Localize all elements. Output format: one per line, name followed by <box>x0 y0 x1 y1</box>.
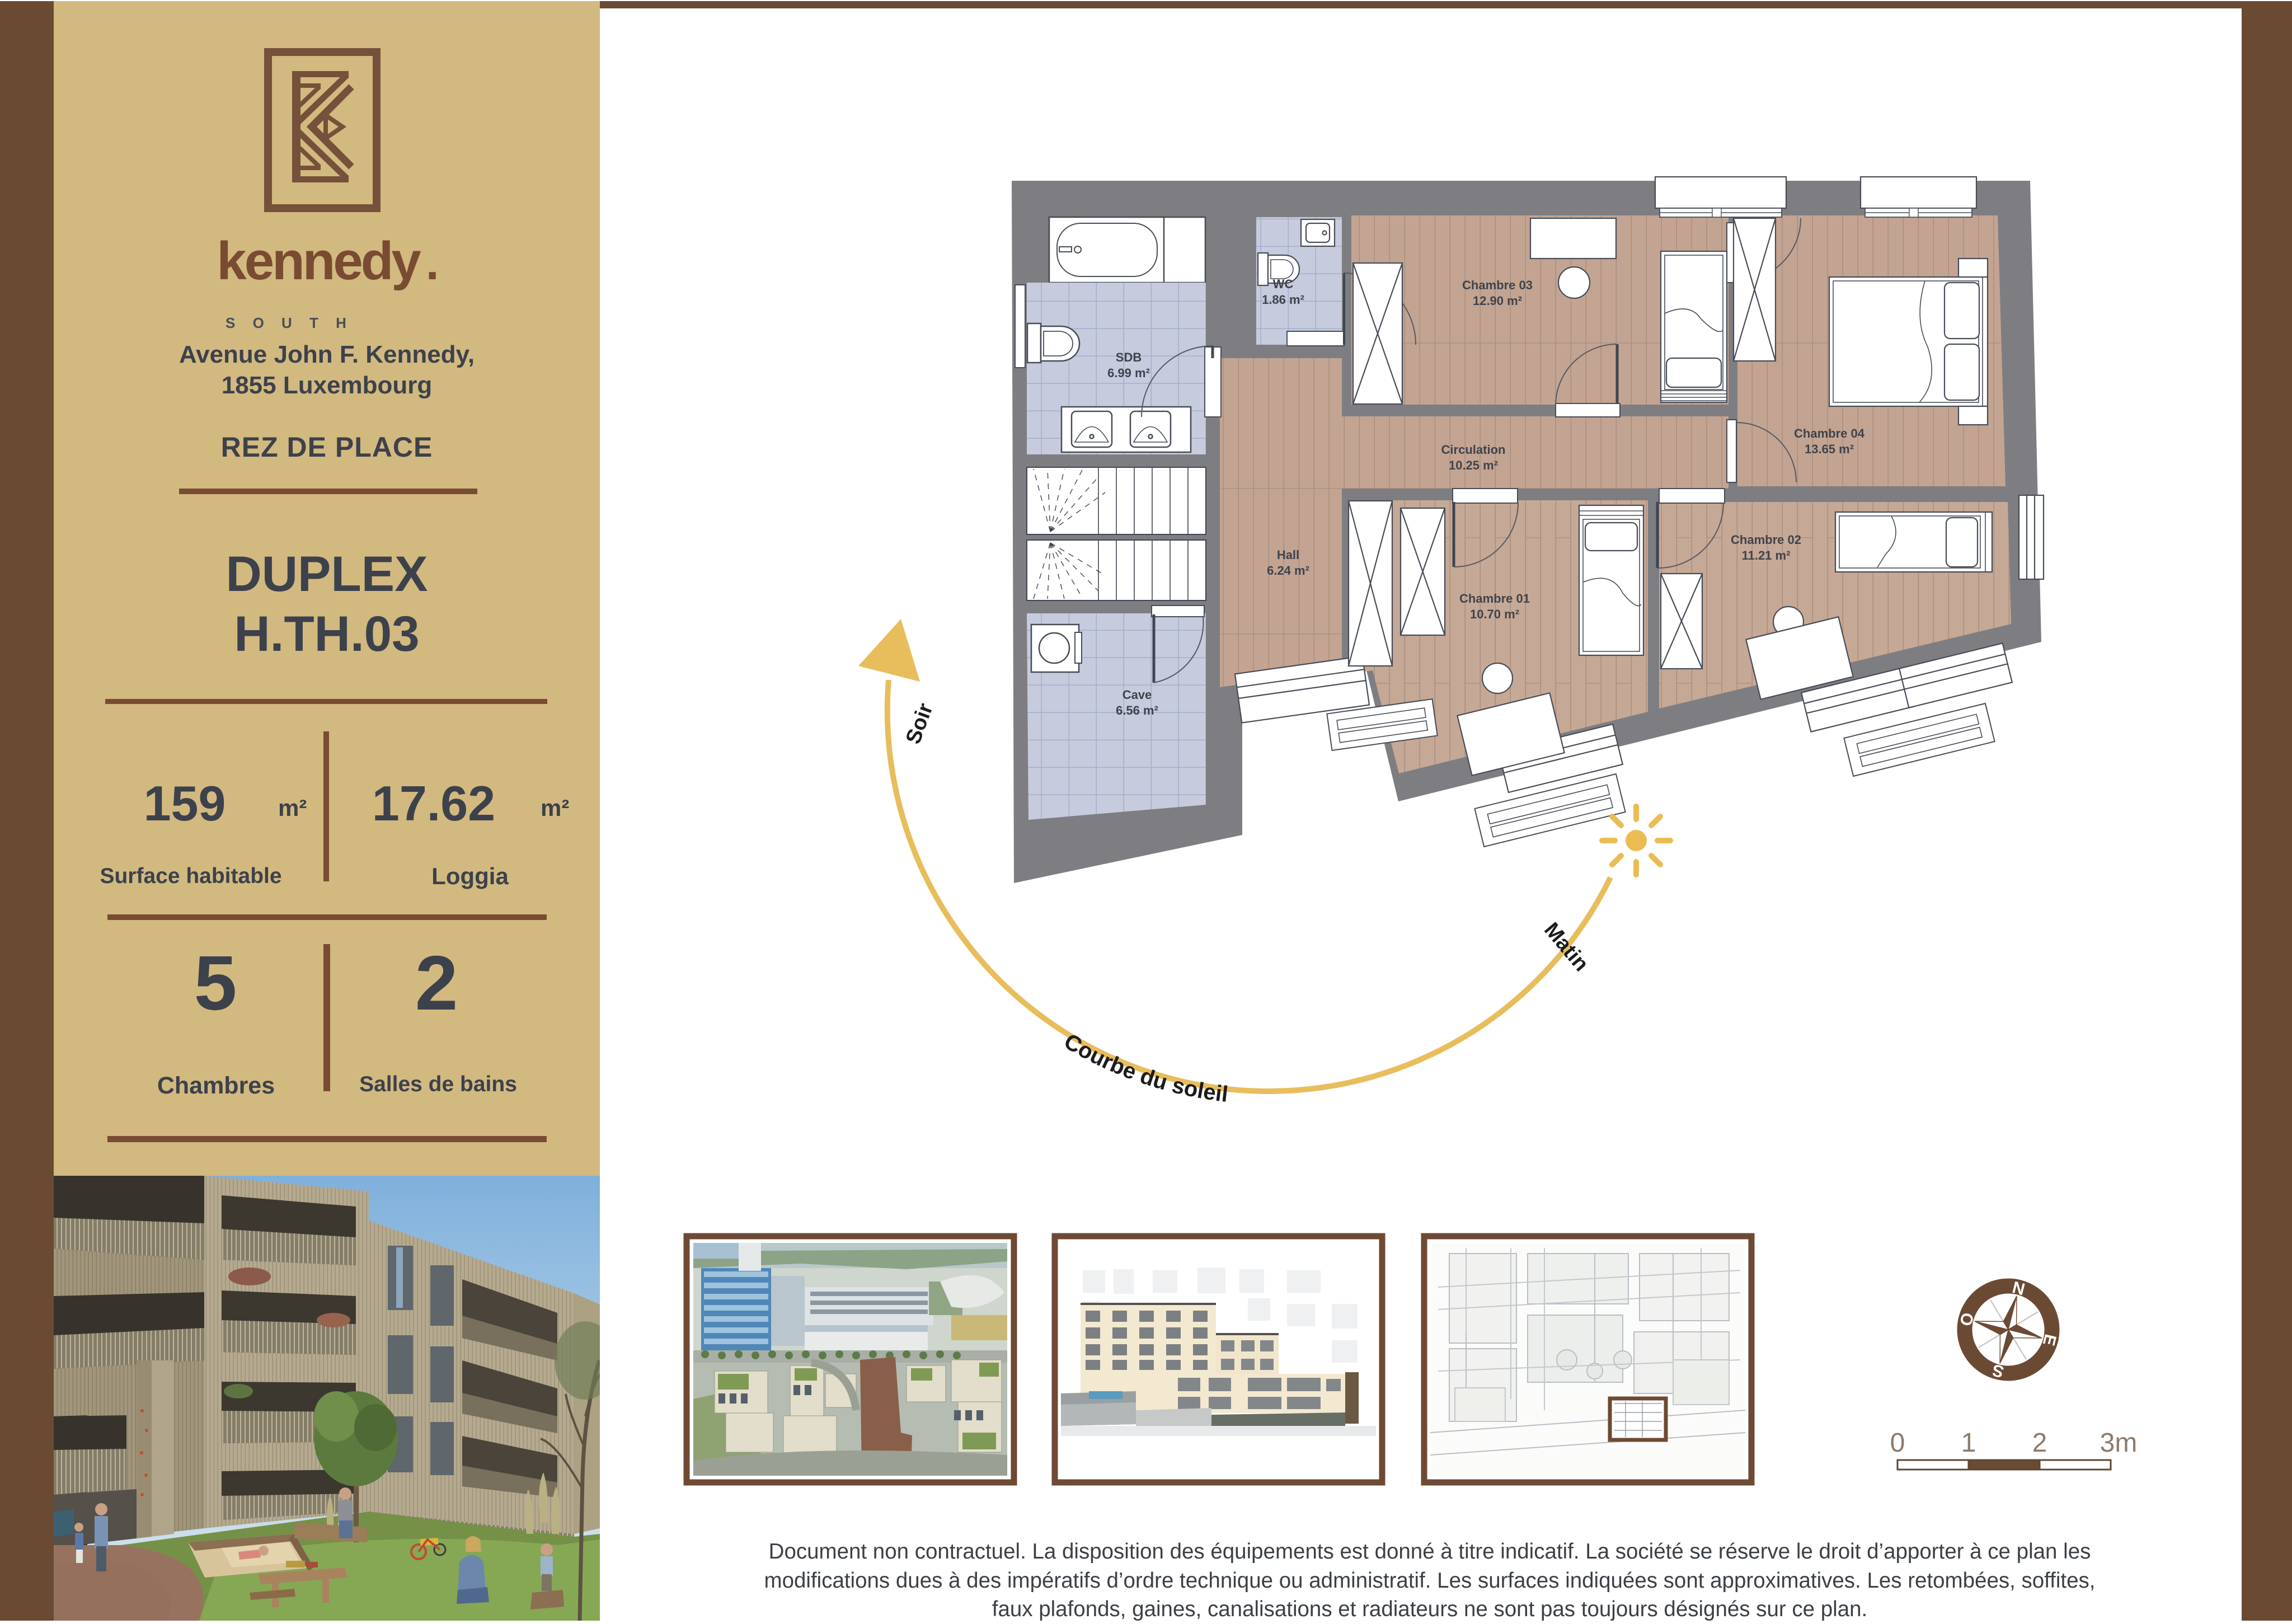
svg-text:10.25 m²: 10.25 m² <box>1449 458 1498 472</box>
svg-text:Soir: Soir <box>901 700 938 747</box>
svg-text:Chambre 02: Chambre 02 <box>1731 533 1801 547</box>
svg-text:WC: WC <box>1273 277 1294 291</box>
svg-text:11.21 m²: 11.21 m² <box>1742 548 1791 562</box>
svg-text:13.65 m²: 13.65 m² <box>1805 442 1854 456</box>
svg-text:6.24 m²: 6.24 m² <box>1267 564 1309 578</box>
svg-text:1.86 m²: 1.86 m² <box>1262 293 1304 307</box>
svg-text:3m: 3m <box>2100 1428 2138 1458</box>
svg-text:1: 1 <box>1961 1428 1976 1458</box>
svg-text:Chambre 03: Chambre 03 <box>1462 278 1533 292</box>
svg-text:10.70 m²: 10.70 m² <box>1470 607 1519 621</box>
svg-text:12.90 m²: 12.90 m² <box>1473 294 1522 308</box>
svg-text:2: 2 <box>2032 1428 2047 1458</box>
svg-text:Circulation: Circulation <box>1441 443 1506 457</box>
svg-text:6.99 m²: 6.99 m² <box>1107 366 1150 380</box>
svg-text:Chambre 04: Chambre 04 <box>1794 426 1865 440</box>
svg-text:SDB: SDB <box>1116 350 1142 364</box>
svg-text:0: 0 <box>1890 1428 1905 1458</box>
svg-text:Chambre 01: Chambre 01 <box>1459 592 1530 606</box>
svg-text:Cave: Cave <box>1122 688 1152 702</box>
svg-text:Hall: Hall <box>1277 548 1299 562</box>
svg-text:6.56 m²: 6.56 m² <box>1116 703 1158 717</box>
svg-text:Courbe du soleil: Courbe du soleil <box>1060 1029 1229 1107</box>
